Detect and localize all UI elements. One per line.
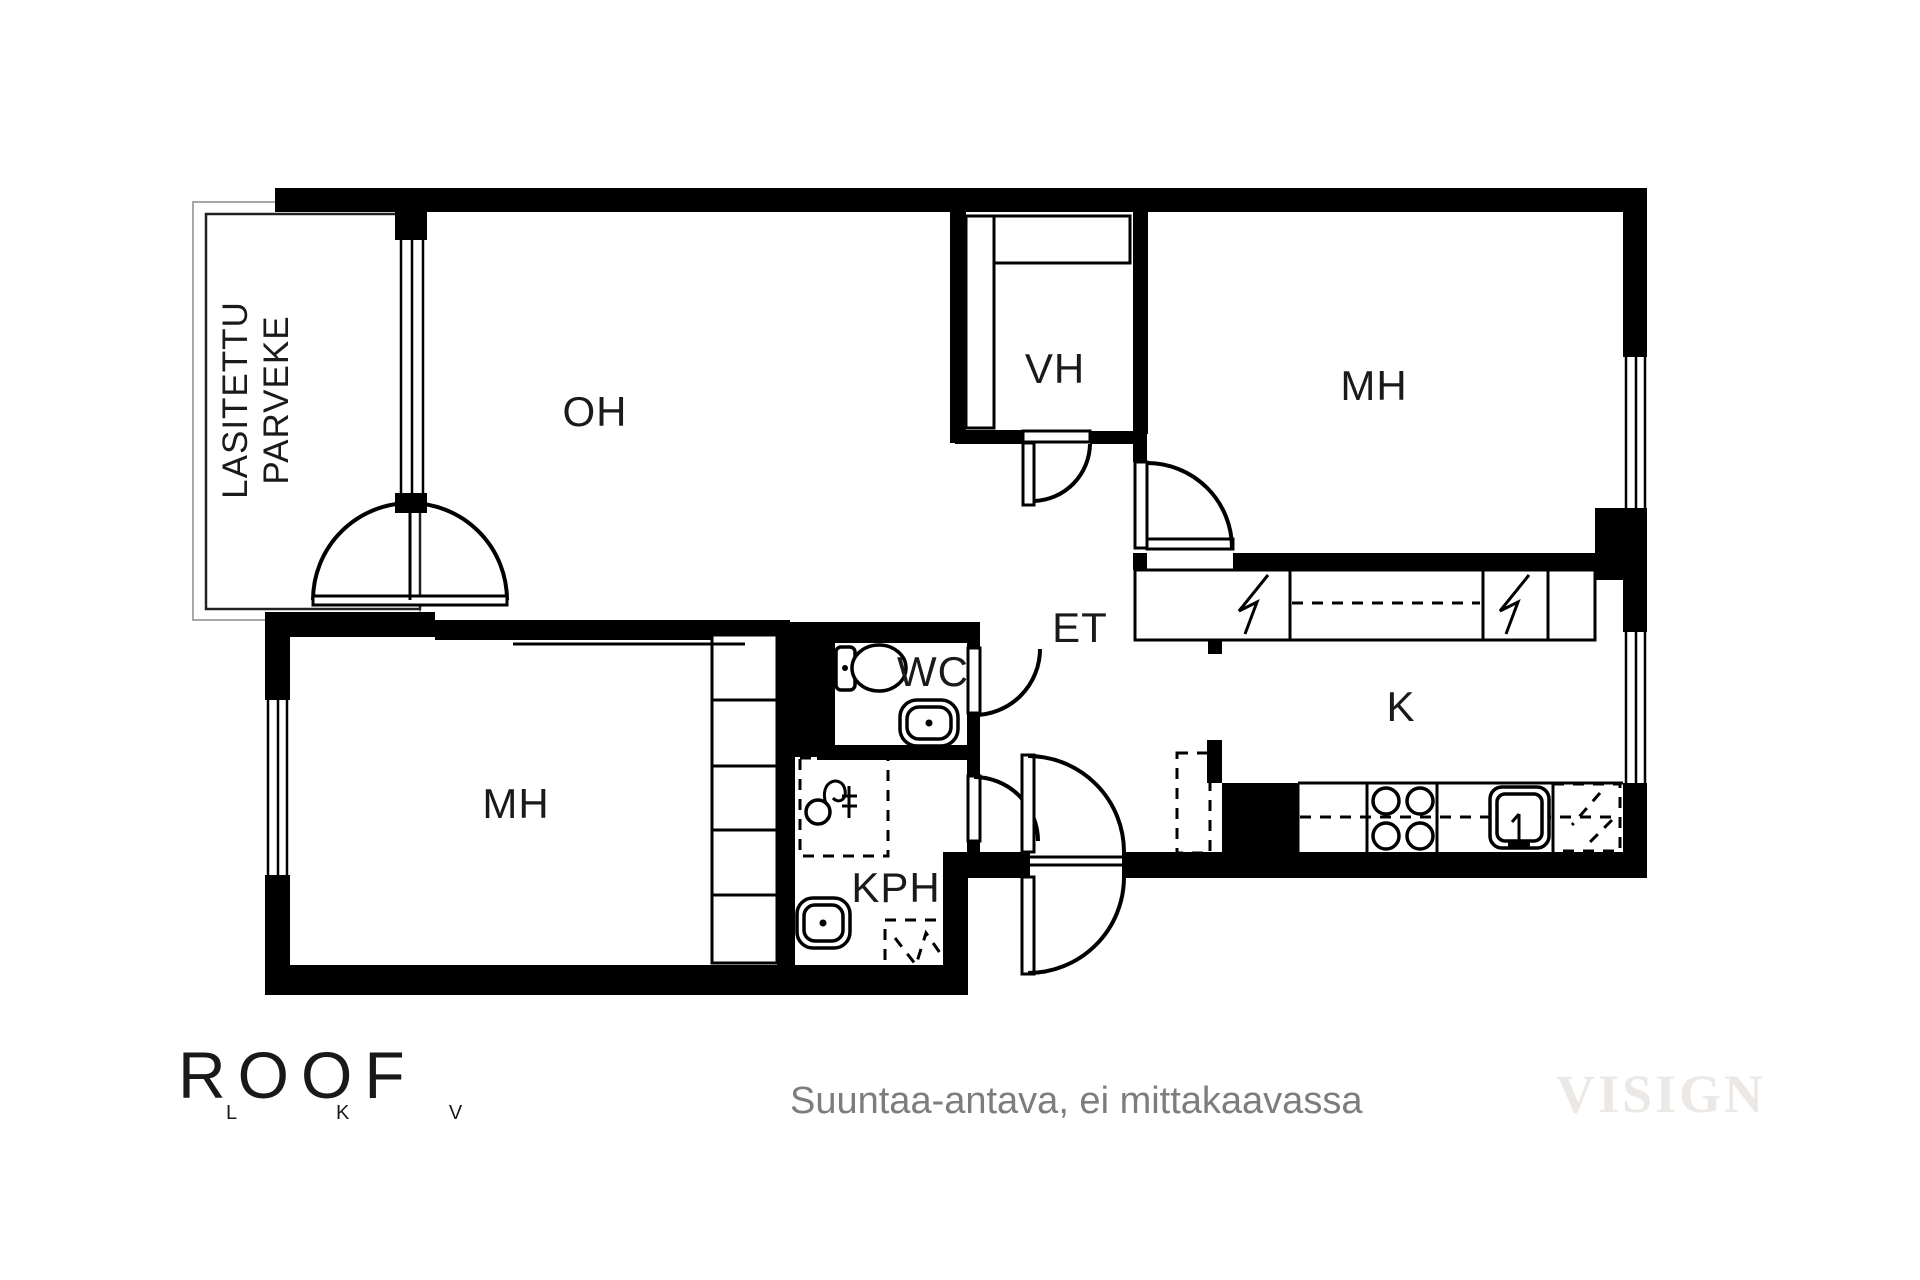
room-label-entry: ET: [1052, 604, 1108, 651]
room-label-bedroom-top: MH: [1340, 362, 1407, 409]
room-label-closet: VH: [1025, 345, 1085, 392]
plan-disclaimer: Suuntaa-antava, ei mittakaavassa: [790, 1080, 1363, 1122]
balcony-double-door: [313, 503, 507, 605]
logo-lkv: L K V: [226, 1102, 509, 1124]
footer: ROOF L K V Suuntaa-antava, ei mittakaava…: [178, 1038, 1766, 1124]
balcony-label-line1: LASITETTU: [216, 301, 255, 499]
entry-closet-row-icon: [1135, 570, 1595, 640]
toilet-icon: [836, 645, 906, 691]
wall-counter-chunk: [1222, 783, 1298, 875]
visign-watermark: VISIGN: [1556, 1064, 1766, 1124]
wall-top: [275, 188, 1647, 212]
wall-bottom-left: [265, 965, 968, 995]
bathroom-sink-icon: [797, 898, 850, 948]
kitchen-window-icon: [1621, 632, 1649, 783]
entry-door: [1022, 755, 1124, 974]
dishwasher-mark: [1572, 793, 1600, 825]
wall-under-balcony: [265, 612, 435, 637]
balcony-window-icon: [394, 240, 429, 493]
bedroom-top-door: [1135, 462, 1233, 549]
floor-plan-page: LASITETTU PARVEKE OH VH MH WC ET K MH KP…: [0, 0, 1920, 1280]
logo-roof: ROOF: [178, 1038, 417, 1112]
wall-mh-bottom-left: [1133, 553, 1147, 570]
dishwasher-mark: [1586, 820, 1612, 846]
floor-plan-drawing: LASITETTU PARVEKE OH VH MH WC ET K MH KP…: [0, 0, 1920, 1280]
room-label-living: OH: [563, 388, 628, 435]
wall-mh-door-post: [1133, 434, 1147, 462]
wall-vh-bottom-left: [955, 430, 1023, 444]
wall-mh-bottom: [1233, 553, 1647, 570]
vh-wardrobe-icon: [966, 216, 1130, 428]
wall-vh-right: [1133, 212, 1148, 434]
wc-sink-icon: [900, 700, 958, 746]
wall-bath-left: [777, 757, 795, 965]
room-label-bathroom: KPH: [851, 864, 940, 911]
room-label-kitchen: K: [1386, 683, 1415, 730]
wall-wc-right-mid: [967, 713, 980, 775]
room-label-bedroom-bottom: MH: [482, 780, 549, 827]
kitchen-sink-icon: [1490, 787, 1549, 849]
bedroom-top-window-icon: [1621, 357, 1649, 508]
wc-door: [968, 648, 1040, 715]
shower-drain-icon: [806, 781, 857, 824]
vh-door: [1023, 431, 1090, 505]
balcony-label-line2: PARVEKE: [257, 315, 296, 484]
wall-bath-left-chunk: [777, 637, 835, 757]
bedroom-wardrobe-column-icon: [513, 635, 777, 963]
wall-vh-left: [950, 212, 966, 443]
room-label-wc: WC: [897, 648, 969, 695]
bedroom-bottom-window-icon: [263, 700, 292, 875]
wall-wc-right-top: [967, 622, 980, 648]
fridge-reservation-icon: [1177, 753, 1210, 853]
